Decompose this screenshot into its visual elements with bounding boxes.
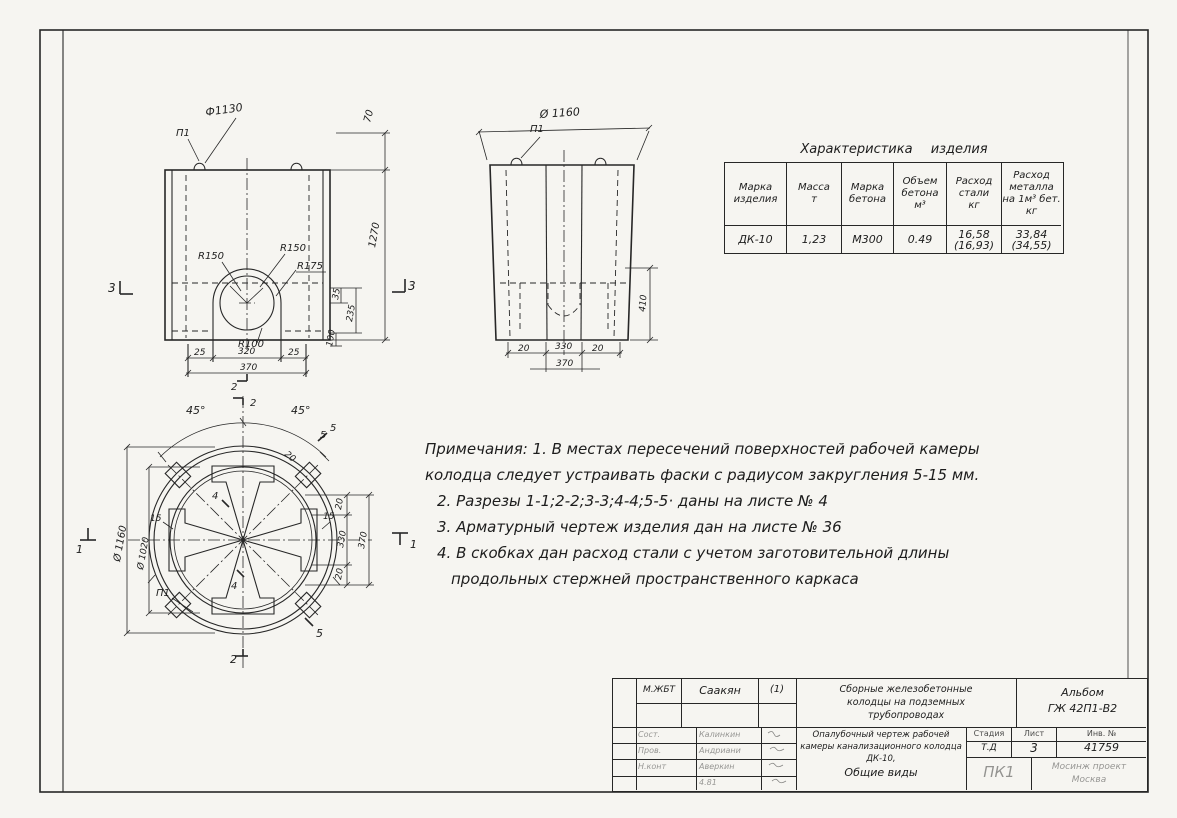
title-block: М.ЖБТ Саакян (1) Сборные железобетонные … <box>612 678 1148 792</box>
dept-code: М.ЖБТ <box>638 685 680 695</box>
front-loop-label: П1 <box>176 128 190 139</box>
row3-name: Аверкин <box>699 762 759 771</box>
cell-obem: 0.49 <box>894 226 947 253</box>
project-line-1: Сборные железобетонные <box>799 683 1013 696</box>
row1-name: Калинкин <box>699 730 759 739</box>
front-dia-label: Ф1130 <box>205 101 244 119</box>
section-mark-4b: 4 <box>231 581 237 592</box>
dim-370: 370 <box>556 359 573 369</box>
doc-title-line-3: ДК-10, <box>799 753 963 765</box>
dim-20-right: 20 <box>592 344 604 354</box>
side-dia-label: Ø 1160 <box>538 105 580 121</box>
album-cell: Альбом ГЖ 42П1-В2 <box>1019 685 1146 717</box>
lifting-loop <box>511 158 522 165</box>
doc-title-line-1: Опалубочный чертеж рабочей <box>799 729 963 741</box>
dim-r150-right: R150 <box>280 243 306 254</box>
side-view: Ø 1160 П1 20 330 20 370 410 <box>476 105 658 372</box>
dim-15-right: 15 <box>323 512 335 522</box>
row2-name: Андриани <box>699 746 759 755</box>
org-line-2: Москва <box>1032 774 1146 787</box>
org-cell: Мосинж проект Москва <box>1032 761 1146 787</box>
dim-410: 410 <box>638 294 649 312</box>
cell-marka-betona: М300 <box>842 226 894 253</box>
cell-rashod-stali: 16,58 (16,93) <box>947 226 1002 253</box>
lifting-loop <box>595 158 606 165</box>
dim-20-diag: 20 <box>282 450 297 465</box>
dim-25-right: 25 <box>288 348 300 358</box>
characteristics-title: Характеристика изделия <box>724 142 1064 157</box>
dim-r175: R175 <box>297 261 323 272</box>
dim-370: 370 <box>240 363 257 373</box>
note-line-4: 3. Арматурный чертеж изделия дан на лист… <box>425 514 990 540</box>
inv-header: Инв. № <box>1057 729 1146 738</box>
lifting-loop <box>291 163 302 170</box>
signature-scribbles <box>760 725 800 791</box>
col-header-massa: Масса т <box>787 163 842 226</box>
angle-45-left: 45° <box>186 404 206 417</box>
side-loop-label: П1 <box>530 124 544 135</box>
row2-role: Пров. <box>638 746 694 755</box>
inv-value: 41759 <box>1057 741 1146 754</box>
notes-block: Примечания: 1. В местах пересечений пове… <box>425 436 990 592</box>
sheet-value: 3 <box>1012 741 1056 755</box>
section-mark-3-left: 3 <box>108 281 116 295</box>
dim-35: 35 <box>331 287 343 300</box>
sheet-header: Лист <box>1012 729 1056 738</box>
col-header-rashod-metalla: Расход металла на 1м³ бет. кг <box>1002 163 1061 226</box>
drawing-sheet: Ф1130 П1 70 1270 R150 R150 R175 R100 25 … <box>0 0 1177 818</box>
dim-20-left: 20 <box>518 344 530 354</box>
col-header-marka-betona: Марка бетона <box>842 163 894 226</box>
col-header-rashod-stali: Расход стали кг <box>947 163 1002 226</box>
section-mark-4a: 4 <box>212 491 218 502</box>
dim-330: 330 <box>555 342 572 352</box>
project-name: Сборные железобетонные колодцы на подзем… <box>799 683 1013 722</box>
dim-70: 70 <box>362 109 376 124</box>
dim-20-top: 20 <box>334 497 346 510</box>
col-header-obem: Объем бетона м³ <box>894 163 947 226</box>
doc-title-line-4: Общие виды <box>799 767 963 779</box>
project-line-2: колодцы на подземных <box>799 696 1013 709</box>
section-mark-2-bottom: 2 <box>230 653 237 666</box>
dept-signature: (1) <box>760 684 794 695</box>
section-mark-3-right: 3 <box>408 279 416 293</box>
dim-25-left: 25 <box>194 348 206 358</box>
note-line-5: 4. В скобках дан расход стали с учетом з… <box>425 540 990 566</box>
note-line-1: Примечания: 1. В местах пересечений пове… <box>425 436 990 462</box>
stage-header: Стадия <box>967 729 1011 738</box>
note-line-6: продольных стержней пространственного ка… <box>425 566 990 592</box>
dim-15-left: 15 <box>150 514 162 524</box>
dim-r150-left: R150 <box>198 251 224 262</box>
row1-role: Сост. <box>638 730 694 739</box>
dim-5-diag: 5 <box>320 430 326 441</box>
stage-value: Т.Д <box>967 743 1011 753</box>
col-header-marka: Марка изделия <box>725 163 787 226</box>
section-mark-2-top: 2 <box>250 398 256 409</box>
dim-20-bottom: 20 <box>334 567 346 580</box>
front-view: Ф1130 П1 70 1270 R150 R150 R175 R100 25 … <box>108 101 416 393</box>
section-mark-1-left: 1 <box>76 543 83 556</box>
section-mark-5b: 5 <box>316 627 323 640</box>
plan-dia-outer: Ø 1160 <box>111 524 129 563</box>
cell-massa: 1,23 <box>787 226 842 253</box>
project-line-3: трубопроводах <box>799 709 1013 722</box>
row3-role: Н.конт <box>638 762 694 771</box>
characteristics-table: Характеристика изделия Марка изделия Мас… <box>724 142 1064 254</box>
cell-marka: ДК-10 <box>725 226 787 253</box>
album-number: ГЖ 42П1-В2 <box>1019 701 1146 717</box>
stamp-mark: ПК1 <box>967 763 1031 781</box>
section-mark-1-right: 1 <box>410 538 417 551</box>
album-word: Альбом <box>1019 685 1146 701</box>
note-line-3: 2. Разрезы 1-1;2-2;3-3;4-4;5-5· даны на … <box>425 488 990 514</box>
plan-loop-label: П1 <box>156 588 170 599</box>
dim-320: 320 <box>238 347 255 357</box>
angle-45-right: 45° <box>291 404 311 417</box>
section-mark-5a: 5 <box>330 423 336 434</box>
dept-name: Саакян <box>683 684 757 697</box>
row4-name: 4.81 <box>699 778 759 787</box>
note-line-2: колодца следует устраивать фаски с радиу… <box>425 462 990 488</box>
cell-rashod-metalla: 33,84 (34,55) <box>1002 226 1061 253</box>
dim-370: 370 <box>357 531 370 550</box>
section-mark-2: 2 <box>231 382 237 393</box>
lifting-loop <box>194 163 205 170</box>
doc-title: Опалубочный чертеж рабочей камеры канали… <box>799 729 963 779</box>
plan-view: 45° 45° 20 5 2 2 1 1 4 4 5 5 Ø 1160 Ø 10… <box>76 396 417 668</box>
doc-title-line-2: камеры канализационного колодца <box>799 741 963 753</box>
org-line-1: Мосинж проект <box>1032 761 1146 774</box>
dim-1270: 1270 <box>367 222 382 249</box>
